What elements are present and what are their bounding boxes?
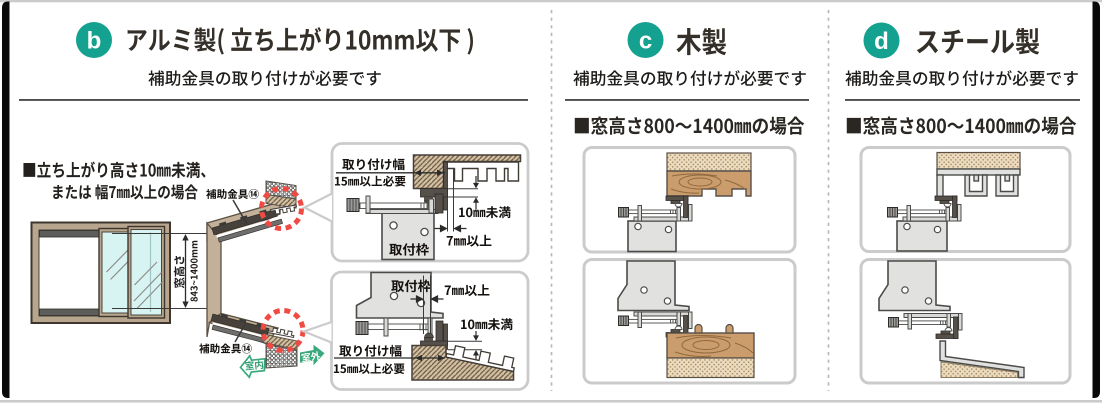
svg-text:c: c [639, 28, 652, 55]
svg-text:d: d [874, 28, 889, 55]
svg-text:b: b [87, 28, 102, 55]
